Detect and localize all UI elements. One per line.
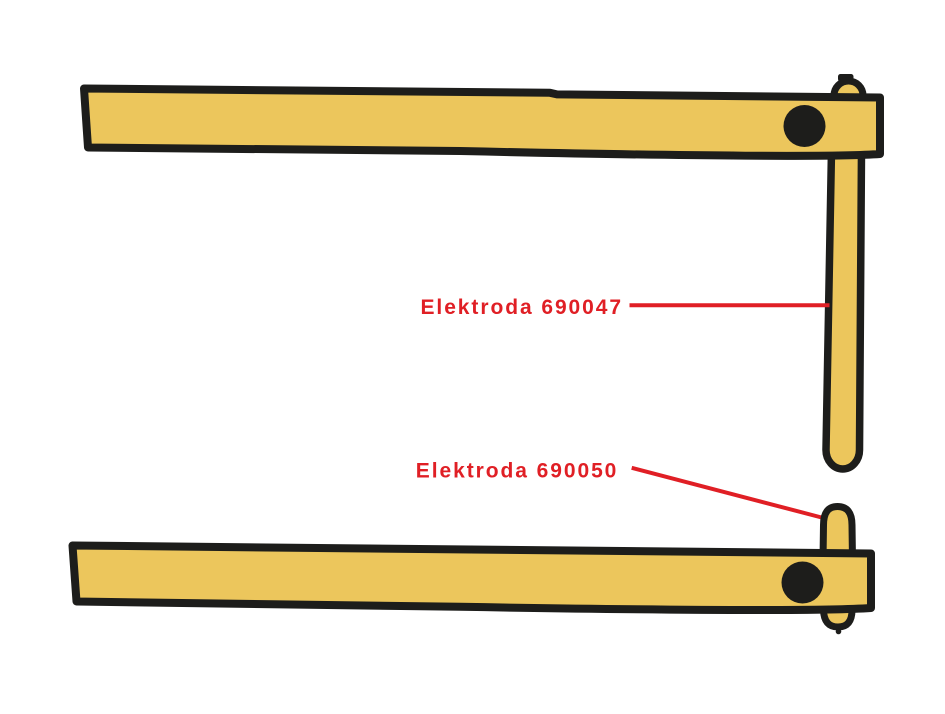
svg-text:Elektroda 690050: Elektroda 690050 — [416, 460, 619, 483]
svg-text:Elektroda 690047: Elektroda 690047 — [421, 296, 624, 319]
